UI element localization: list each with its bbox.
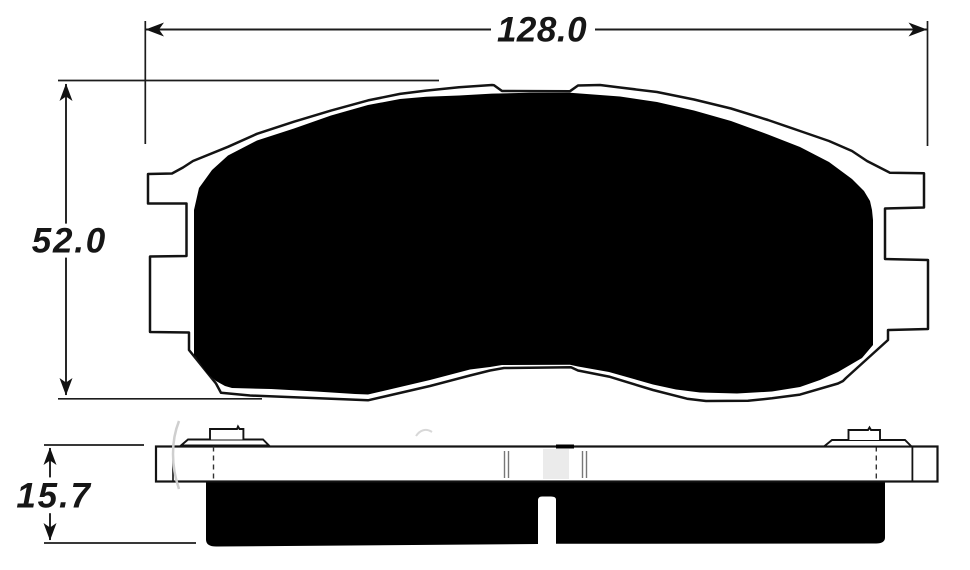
svg-text:52.0: 52.0 — [32, 222, 107, 261]
svg-text:15.7: 15.7 — [16, 477, 91, 516]
svg-text:128.0: 128.0 — [497, 10, 587, 49]
